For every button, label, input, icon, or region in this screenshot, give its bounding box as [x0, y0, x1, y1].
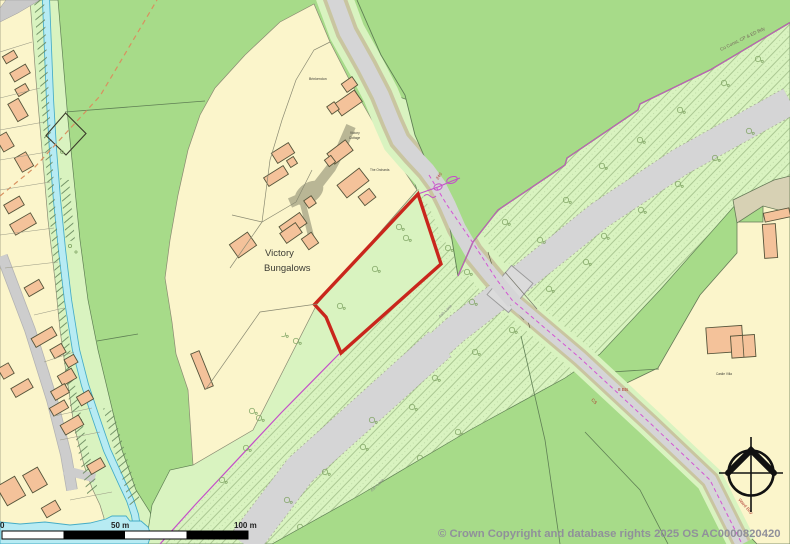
svg-text:0: 0	[0, 521, 5, 530]
svg-text:The Orchards: The Orchards	[370, 168, 390, 172]
svg-text:Castle Villa: Castle Villa	[716, 372, 732, 376]
svg-text:50 m: 50 m	[111, 521, 129, 530]
svg-text:Victory: Victory	[350, 131, 360, 135]
svg-text:8 Bts: 8 Bts	[618, 387, 629, 392]
svg-text:100 m: 100 m	[234, 521, 257, 530]
svg-text:Brinkendon: Brinkendon	[309, 77, 327, 81]
svg-text:Cottage: Cottage	[349, 136, 360, 140]
svg-text:© Crown Copyright and database: © Crown Copyright and database rights 20…	[438, 528, 781, 540]
svg-text:Victory: Victory	[265, 248, 294, 259]
svg-text:Bungalows: Bungalows	[264, 263, 311, 274]
